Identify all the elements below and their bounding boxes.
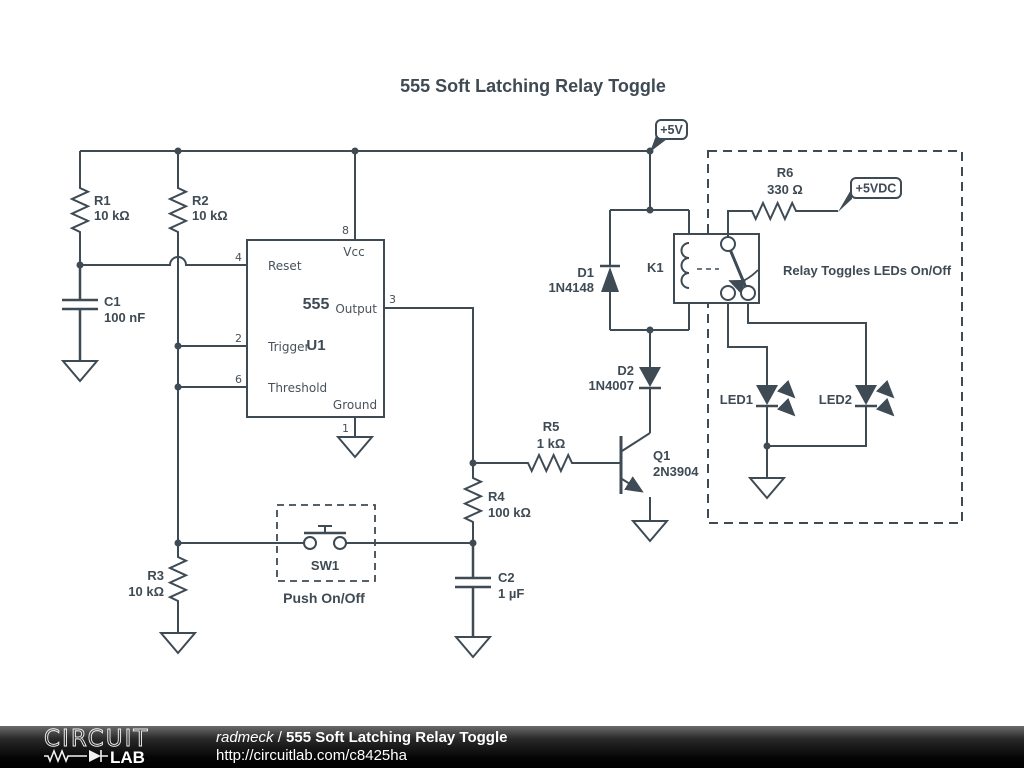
d2-ref: D2 xyxy=(617,363,634,378)
pin-number-ground: 1 xyxy=(342,422,349,435)
led-triangle xyxy=(756,385,778,405)
c2-ref: C2 xyxy=(498,570,515,585)
capacitor-c2[interactable]: C2 1 µF xyxy=(455,543,524,637)
pin-label-threshold: Threshold xyxy=(267,381,327,395)
d1-ref: D1 xyxy=(577,265,594,280)
ground-icon xyxy=(633,521,667,541)
c1-value: 100 nF xyxy=(104,310,145,325)
contact-pin xyxy=(741,286,755,300)
footer-title-line: radmeck / 555 Soft Latching Relay Toggle xyxy=(216,729,507,747)
led-led2[interactable]: LED2 xyxy=(819,385,893,415)
wire-led-cathodes xyxy=(767,406,866,446)
r5-value: 1 kΩ xyxy=(537,436,566,451)
pin-number-threshold: 6 xyxy=(235,373,242,386)
pin-label-reset: Reset xyxy=(268,259,302,273)
q1-ref: Q1 xyxy=(653,448,670,463)
junction-dot xyxy=(352,148,359,155)
r6-value: 330 Ω xyxy=(767,182,803,197)
ground-symbols xyxy=(63,361,784,657)
ground-icon xyxy=(63,361,97,381)
emitter-line xyxy=(622,479,642,492)
resistor-r1[interactable]: R1 10 kΩ xyxy=(72,151,130,265)
capacitor-symbol xyxy=(62,265,98,361)
capacitor-c1[interactable]: C1 100 nF xyxy=(62,265,145,361)
r4-ref: R4 xyxy=(488,489,505,504)
flag-5vdc-label: +5VDC xyxy=(856,182,897,196)
resistor-r5[interactable]: R5 1 kΩ xyxy=(473,419,620,471)
footer-separator: / xyxy=(274,729,287,746)
pin-label-output: Output xyxy=(335,302,377,316)
footer-url: http://circuitlab.com/c8425ha xyxy=(216,747,507,765)
power-flag-5vdc[interactable]: +5VDC xyxy=(838,178,901,212)
switch-terminal xyxy=(334,537,346,549)
r2-value: 10 kΩ xyxy=(192,208,228,223)
pin-number-vcc: 8 xyxy=(342,224,349,237)
r3-ref: R3 xyxy=(147,568,164,583)
wire-contact-to-led2 xyxy=(748,300,866,385)
resistor-symbol xyxy=(170,543,186,633)
pin-label-trigger: Trigger xyxy=(267,340,309,354)
footer-author: radmeck xyxy=(216,729,274,746)
circuitlab-logo: CIRCUIT LAB xyxy=(42,725,192,768)
c2-value: 1 µF xyxy=(498,586,524,601)
relay-k1[interactable]: K1 xyxy=(647,210,759,330)
flag-5v-label: +5V xyxy=(660,123,683,137)
diode-d2[interactable]: D2 1N4007 xyxy=(588,330,661,433)
resistor-symbol xyxy=(473,455,620,471)
led-led1[interactable]: LED1 xyxy=(720,385,794,415)
emission-arrow xyxy=(882,404,893,415)
transistor-q1[interactable]: Q1 2N3904 xyxy=(621,433,699,494)
ground-icon xyxy=(750,478,784,498)
r6-ref: R6 xyxy=(777,165,794,180)
pin-number-reset: 4 xyxy=(235,251,242,264)
pin-label-vcc: Vcc xyxy=(343,245,364,259)
r2-ref: R2 xyxy=(192,193,209,208)
led-triangle xyxy=(855,385,877,405)
footer-meta: radmeck / 555 Soft Latching Relay Toggle… xyxy=(216,729,507,765)
ground-icon xyxy=(161,633,195,653)
r5-ref: R5 xyxy=(543,419,560,434)
r3-value: 10 kΩ xyxy=(128,584,164,599)
d1-value: 1N4148 xyxy=(548,280,594,295)
resistor-symbol xyxy=(465,463,481,543)
junction-dot xyxy=(647,207,654,214)
emission-arrow xyxy=(783,386,794,397)
ground-icon xyxy=(456,637,490,657)
circuitlab-logo-svg: CIRCUIT LAB xyxy=(42,725,192,765)
collector-line xyxy=(622,433,650,451)
diode-triangle xyxy=(639,367,661,387)
emission-arrow xyxy=(783,404,794,415)
c1-ref: C1 xyxy=(104,294,121,309)
resistor-r4[interactable]: R4 100 kΩ xyxy=(465,463,531,543)
led2-ref: LED2 xyxy=(819,392,852,407)
footer-bar: CIRCUIT LAB radmeck / 555 Soft Latching … xyxy=(0,726,1024,768)
ic-u1[interactable]: 555 U1 Reset Trigger Threshold Vcc Outpu… xyxy=(235,224,396,435)
junction-dots xyxy=(77,148,771,547)
diode-triangle xyxy=(601,267,619,292)
dashed-region-box xyxy=(708,151,962,523)
schematic: 555 Soft Latching Relay Toggle xyxy=(0,0,1024,726)
pin-number-trigger: 2 xyxy=(235,332,242,345)
pin-label-ground: Ground xyxy=(333,398,377,412)
wire-reset-with-hop xyxy=(80,257,247,265)
switch-sw1[interactable]: SW1 Push On/Off xyxy=(277,505,375,606)
d2-value: 1N4007 xyxy=(588,378,634,393)
ground-icon xyxy=(338,437,372,457)
resistor-r6[interactable]: R6 330 Ω xyxy=(728,165,838,237)
capacitor-symbol xyxy=(455,543,491,637)
resistor-symbol xyxy=(72,151,88,265)
switch-terminal xyxy=(304,537,316,549)
wire-output xyxy=(384,308,473,463)
k1-ref: K1 xyxy=(647,260,664,275)
power-flag-5v[interactable]: +5V xyxy=(650,120,687,152)
led1-ref: LED1 xyxy=(720,392,753,407)
resistor-r3[interactable]: R3 10 kΩ xyxy=(128,543,186,633)
r1-value: 10 kΩ xyxy=(94,208,130,223)
pin-number-output: 3 xyxy=(389,293,396,306)
logo-lab-text: LAB xyxy=(110,748,145,765)
ic-part: 555 xyxy=(303,296,330,313)
schematic-title: 555 Soft Latching Relay Toggle xyxy=(400,76,666,96)
q1-value: 2N3904 xyxy=(653,464,699,479)
emission-arrow xyxy=(882,386,893,397)
sw1-ref: SW1 xyxy=(311,558,339,573)
diode-d1[interactable]: D1 1N4148 xyxy=(548,210,620,330)
r1-ref: R1 xyxy=(94,193,111,208)
logo-resistor-icon xyxy=(44,751,87,761)
contact-pin xyxy=(721,286,735,300)
contact-pin xyxy=(721,237,735,251)
sw1-caption: Push On/Off xyxy=(283,590,365,606)
relay-note: Relay Toggles LEDs On/Off xyxy=(783,263,952,278)
footer-doc-title: 555 Soft Latching Relay Toggle xyxy=(286,729,507,746)
r4-value: 100 kΩ xyxy=(488,505,531,520)
junction-dot xyxy=(764,443,771,450)
circuitlab-schematic-page: 555 Soft Latching Relay Toggle xyxy=(0,0,1024,768)
resistor-symbol xyxy=(728,203,838,237)
flag-tail xyxy=(838,188,852,212)
